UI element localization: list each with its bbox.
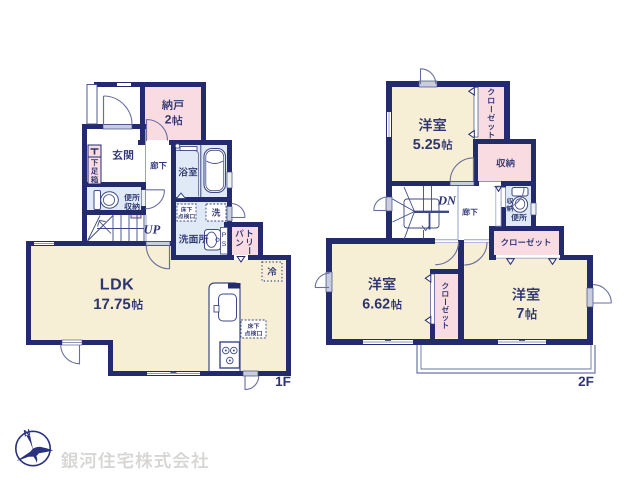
svg-text:1F: 1F xyxy=(275,374,291,389)
svg-text:UP: UP xyxy=(144,222,161,236)
svg-text:7: 7 xyxy=(516,306,524,322)
svg-text:6.62: 6.62 xyxy=(362,297,390,313)
svg-text:2F: 2F xyxy=(578,374,594,389)
svg-text:S: S xyxy=(222,241,227,248)
svg-text:5.25: 5.25 xyxy=(413,137,441,153)
svg-text:LDK: LDK xyxy=(100,277,134,294)
svg-text:17.75: 17.75 xyxy=(93,296,131,313)
svg-text:P: P xyxy=(222,232,227,239)
svg-text:2: 2 xyxy=(165,113,172,127)
svg-text:DN: DN xyxy=(437,193,457,207)
